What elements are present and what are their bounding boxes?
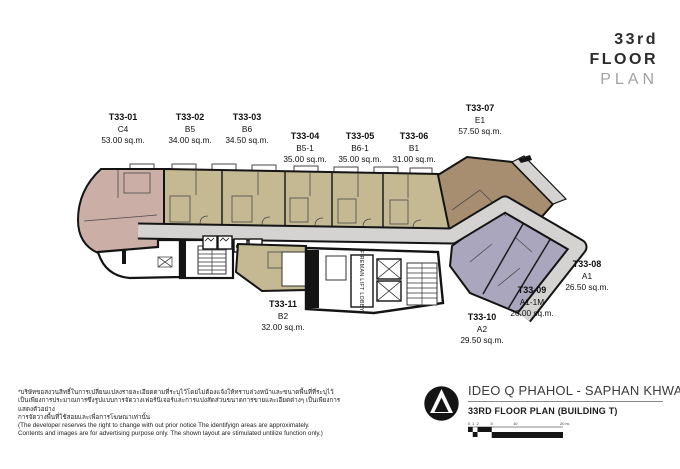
unit-label-t33-11: T33-11 B2 32.00 sq.m.	[261, 299, 304, 334]
unit-label-t33-09: T33-09 A1-1M 26.00 sq.m.	[510, 285, 553, 320]
scale-label: 20 m.	[560, 421, 570, 426]
unit-area: 34.50 sq.m.	[225, 135, 268, 147]
scale-label: 5	[491, 421, 494, 426]
lift-boxes	[203, 236, 232, 249]
unit-id: T33-08	[565, 259, 608, 271]
unit-label-t33-06: T33-06 B1 31.00 sq.m.	[392, 131, 435, 166]
unit-id: T33-11	[261, 299, 304, 311]
unit-type: C4	[101, 124, 144, 136]
scale-label: 0	[468, 421, 471, 426]
disclaimer-thai-line: เป็นเพียงการประมาณการซึ่งรูปแบบการจัดวาง…	[18, 397, 348, 414]
project-name: IDEO Q PHAHOL - SAPHAN KHWAI	[468, 383, 663, 402]
terrace-fixture	[158, 257, 172, 267]
unit-label-t33-01: T33-01 C4 53.00 sq.m.	[101, 112, 144, 147]
unit-type: A2	[460, 324, 503, 336]
unit-label-t33-03: T33-03 B6 34.50 sq.m.	[225, 112, 268, 147]
unit-area: 31.00 sq.m.	[392, 154, 435, 166]
unit-label-t33-02: T33-02 B5 34.00 sq.m.	[168, 112, 211, 147]
unit-id: T33-07	[458, 103, 501, 115]
disclaimer-thai-line: การจัดวางพื้นที่ใช้สอยและเพื่อการโฆษณาเท…	[18, 414, 348, 422]
unit-id: T33-01	[101, 112, 144, 124]
unit-id: T33-04	[283, 131, 326, 143]
fireman-lift-lobby-label: FIREMAN LIFT LOBBY	[358, 250, 364, 311]
ideo-logo-icon	[423, 385, 460, 422]
disclaimer-english-line: Contents and images are for advertising …	[18, 430, 348, 438]
unit-label-t33-08: T33-08 A1 26.50 sq.m.	[565, 259, 608, 294]
unit-id: T33-03	[225, 112, 268, 124]
scale-bar: 0 1 2 5 10 20 m.	[468, 421, 573, 441]
unit-id: T33-02	[168, 112, 211, 124]
disclaimer-text: *บริษัทขอสงวนสิทธิ์ในการเปลี่ยนแปลงรายละ…	[18, 389, 348, 439]
main-core: FIREMAN LIFT LOBBY	[306, 248, 443, 313]
unit-area: 26.00 sq.m.	[510, 308, 553, 320]
unit-type: B5	[168, 124, 211, 136]
scale-label: 10	[513, 421, 518, 426]
unit-id: T33-05	[338, 131, 381, 143]
unit-area: 34.00 sq.m.	[168, 135, 211, 147]
unit-type: B6-1	[338, 143, 381, 155]
disclaimer-english-line: (The developer reserves the right to cha…	[18, 422, 348, 430]
main-stair	[407, 263, 437, 305]
unit-type: E1	[458, 115, 501, 127]
column	[122, 249, 126, 264]
unit-label-t33-10: T33-10 A2 29.50 sq.m.	[460, 312, 503, 347]
unit-area: 57.50 sq.m.	[458, 126, 501, 138]
unit-type: B6	[225, 124, 268, 136]
unit-area: 29.50 sq.m.	[460, 335, 503, 347]
unit-type: A1-1M	[510, 297, 553, 309]
unit-id: T33-09	[510, 285, 553, 297]
unit-area: 53.00 sq.m.	[101, 135, 144, 147]
unit-type: B5-1	[283, 143, 326, 155]
unit-type: B2	[261, 311, 304, 323]
service-room	[282, 252, 306, 286]
floor-plan-page: 33rd FLOOR PLAN	[0, 0, 680, 469]
unit-type: B1	[392, 143, 435, 155]
unit-id: T33-10	[460, 312, 503, 324]
unit-type: A1	[565, 271, 608, 283]
unit-label-t33-05: T33-05 B6-1 35.00 sq.m.	[338, 131, 381, 166]
unit-area: 32.00 sq.m.	[261, 322, 304, 334]
unit-id: T33-06	[392, 131, 435, 143]
scale-label: 2	[477, 421, 480, 426]
plan-subtitle: 33RD FLOOR PLAN (BUILDING T)	[468, 406, 663, 416]
unit-label-t33-04: T33-04 B5-1 35.00 sq.m.	[283, 131, 326, 166]
unit-area: 26.50 sq.m.	[565, 282, 608, 294]
scale-label: 1	[472, 421, 475, 426]
unit-label-t33-07: T33-07 E1 57.50 sq.m.	[458, 103, 501, 138]
unit-area: 35.00 sq.m.	[283, 154, 326, 166]
unit-area: 35.00 sq.m.	[338, 154, 381, 166]
